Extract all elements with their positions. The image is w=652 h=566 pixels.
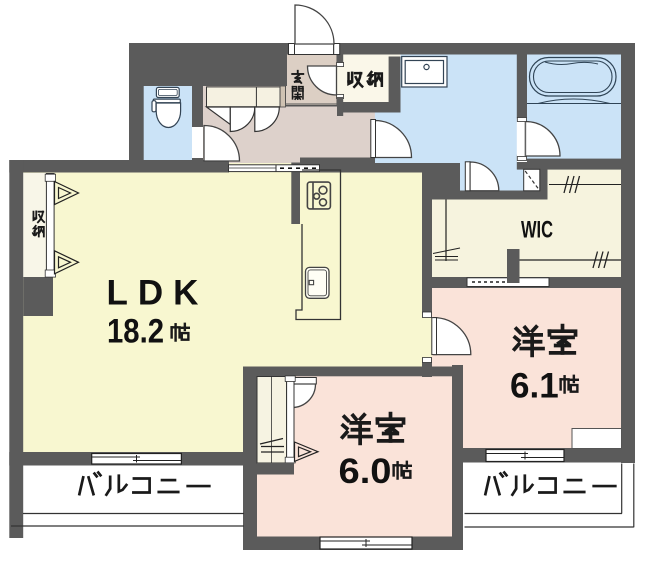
svg-text:6.0: 6.0: [339, 452, 392, 491]
svg-text:LDK: LDK: [107, 274, 209, 313]
svg-text:18.2: 18.2: [107, 313, 164, 351]
svg-text:WIC: WIC: [521, 217, 553, 244]
svg-text:6.1: 6.1: [510, 367, 559, 406]
